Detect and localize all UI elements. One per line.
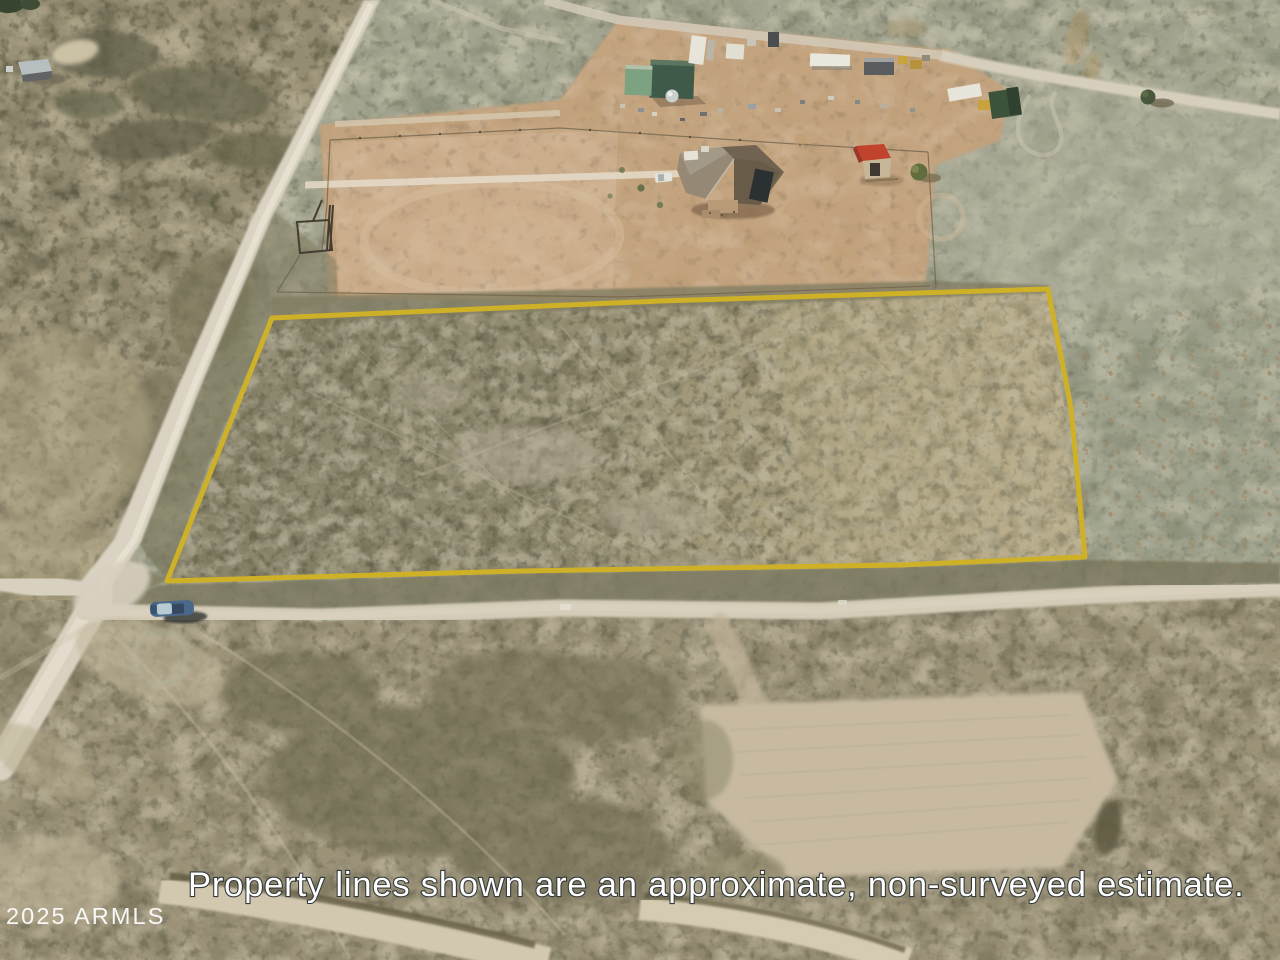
svg-text:Property lines shown are an ap: Property lines shown are an approximate,… <box>188 866 1245 904</box>
svg-text:2025 ARMLS: 2025 ARMLS <box>6 903 165 929</box>
